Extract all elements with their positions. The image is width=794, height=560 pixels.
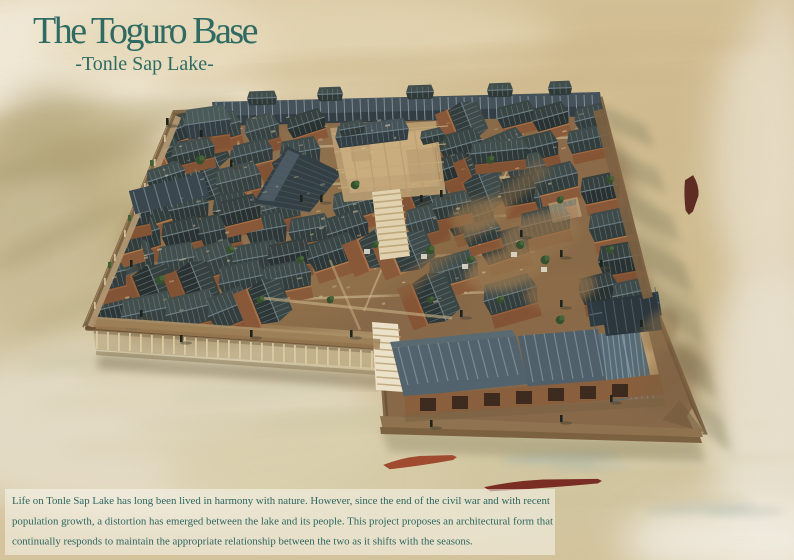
svg-text:continually responds to mainta: continually responds to maintain the app… bbox=[12, 536, 473, 548]
svg-text:population growth, a distortio: population growth, a distortion has emer… bbox=[12, 515, 553, 527]
svg-text:The Toguro Base: The Toguro Base bbox=[33, 10, 258, 52]
svg-text:Life on Tonle Sap Lake has lon: Life on Tonle Sap Lake has long been liv… bbox=[12, 495, 550, 507]
svg-text:-Tonle Sap Lake-: -Tonle Sap Lake- bbox=[75, 53, 214, 75]
